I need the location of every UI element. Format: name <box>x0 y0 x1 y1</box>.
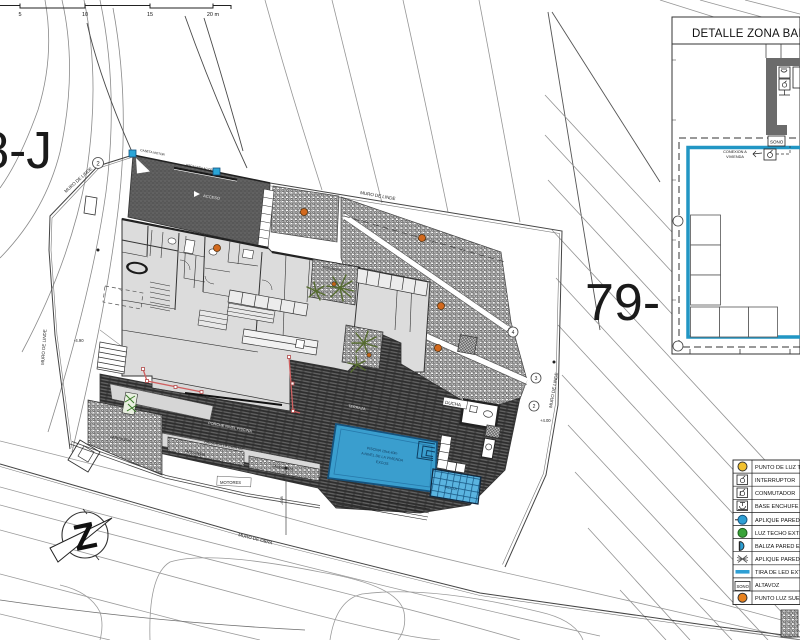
svg-text:BASE ENCHUFE: BASE ENCHUFE <box>755 504 799 510</box>
svg-text:SONO: SONO <box>737 584 750 589</box>
svg-text:SONO: SONO <box>770 140 784 145</box>
svg-text:INTERRUPTOR: INTERRUPTOR <box>755 478 795 484</box>
svg-text:DETALLE ZONA BAR: DETALLE ZONA BAR <box>692 28 800 40</box>
svg-text:LUZ TECHO EXTERIOR: LUZ TECHO EXTERIOR <box>755 531 800 537</box>
svg-text:PUNTO LUZ SUELO: PUNTO LUZ SUELO <box>755 596 800 602</box>
svg-text:CONEXION A: CONEXION A <box>723 150 747 154</box>
svg-text:PUNTO DE LUZ TECHO: PUNTO DE LUZ TECHO <box>755 465 800 471</box>
svg-text:APLIQUE PARED EXT: APLIQUE PARED EXT <box>755 518 800 524</box>
svg-text:APLIQUE PARED EXT: APLIQUE PARED EXT <box>755 557 800 563</box>
svg-text:TIRA DE LED EXT: TIRA DE LED EXT <box>755 570 800 576</box>
svg-text:20 m: 20 m <box>207 12 220 18</box>
svg-text:3: 3 <box>535 376 538 382</box>
svg-text:ALTAVOZ: ALTAVOZ <box>755 583 780 589</box>
svg-text:CONMUTADOR: CONMUTADOR <box>755 491 795 497</box>
svg-text:79-: 79- <box>585 274 660 332</box>
svg-text:2: 2 <box>533 404 536 410</box>
svg-text:15: 15 <box>147 12 153 18</box>
svg-text:-4.08: -4.08 <box>280 496 284 505</box>
svg-text:-4.90: -4.90 <box>74 338 84 343</box>
svg-text:78-J: 78-J <box>0 122 52 180</box>
svg-text:VIVIENDA: VIVIENDA <box>726 155 744 159</box>
svg-text:BALIZA PARED EXT: BALIZA PARED EXT <box>755 544 800 550</box>
svg-text:+4.00: +4.00 <box>540 418 551 423</box>
svg-text:4: 4 <box>512 330 515 336</box>
svg-text:5: 5 <box>18 12 21 18</box>
svg-text:MOTORES: MOTORES <box>220 480 241 485</box>
svg-text:10: 10 <box>82 12 88 18</box>
